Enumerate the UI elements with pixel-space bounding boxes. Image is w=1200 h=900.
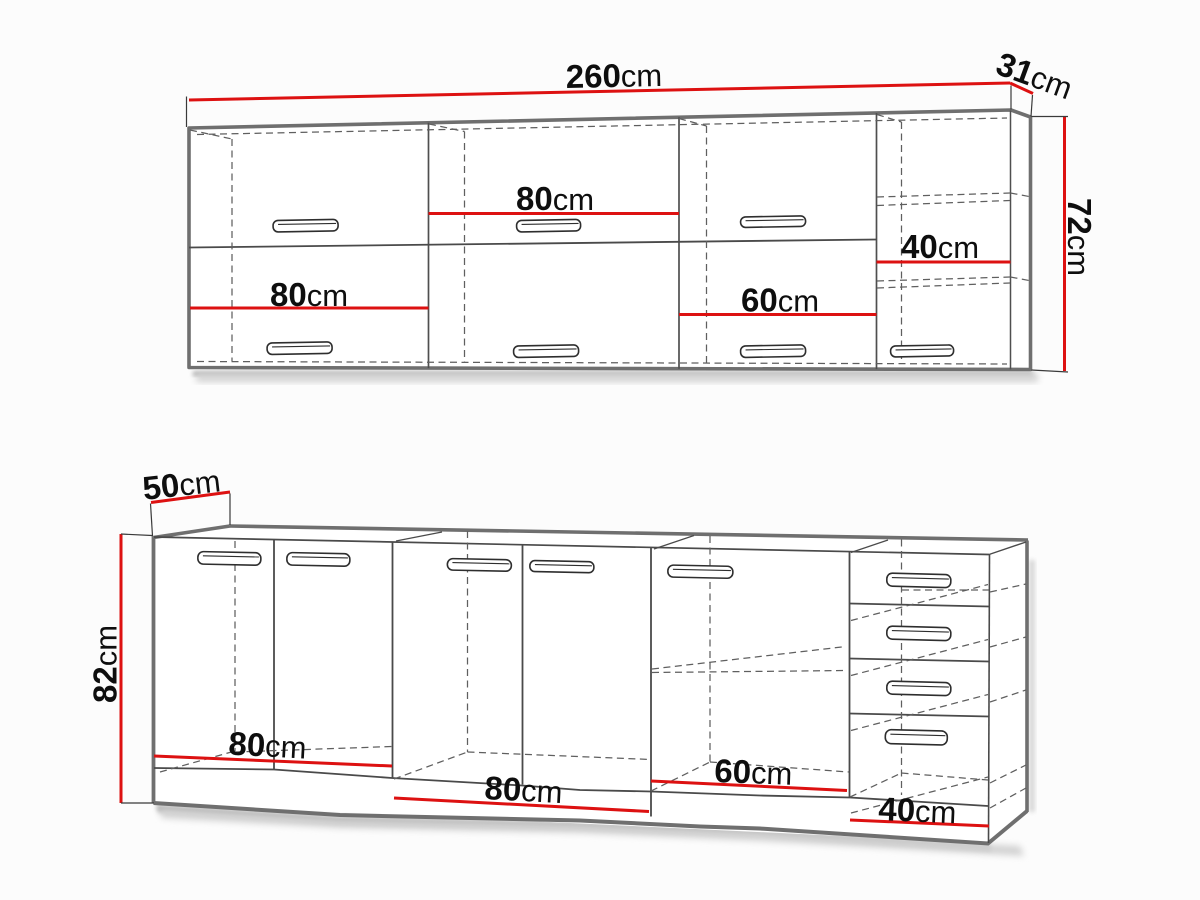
svg-text:80cm: 80cm [484, 769, 564, 810]
svg-text:60cm: 60cm [741, 282, 819, 319]
svg-text:72cm: 72cm [1061, 198, 1098, 276]
svg-text:60cm: 60cm [714, 752, 793, 792]
svg-text:80cm: 80cm [270, 276, 348, 313]
svg-text:80cm: 80cm [516, 180, 594, 217]
svg-text:260cm: 260cm [565, 56, 662, 95]
svg-text:40cm: 40cm [878, 790, 958, 830]
svg-text:40cm: 40cm [901, 228, 979, 265]
svg-text:82cm: 82cm [87, 625, 124, 703]
svg-text:80cm: 80cm [228, 725, 308, 766]
